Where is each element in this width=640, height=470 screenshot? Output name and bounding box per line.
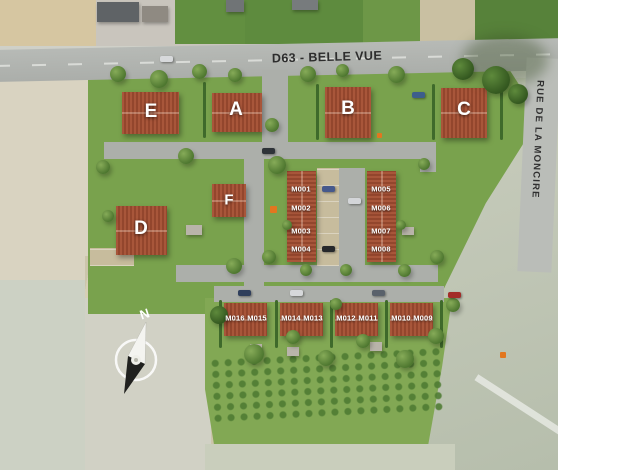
car xyxy=(322,246,335,252)
unit-label: M011 xyxy=(358,314,377,323)
tree-icon xyxy=(110,66,126,82)
tree-icon xyxy=(508,84,528,104)
site-plan-canvas: D63 - BELLE VUE RUE DE LA MONCIRE E A B … xyxy=(0,0,640,470)
unit-label: M008 xyxy=(371,245,391,254)
tree-icon xyxy=(396,220,406,230)
unit-label: M012 xyxy=(336,314,356,323)
neighbor-roof xyxy=(226,0,244,12)
tree-icon xyxy=(178,148,194,164)
garden-shed xyxy=(186,225,202,235)
car xyxy=(290,290,303,296)
unit-label: M010 xyxy=(391,314,411,323)
tree-icon xyxy=(268,156,286,174)
unit-label: M005 xyxy=(371,185,391,194)
tree-icon xyxy=(300,66,316,82)
playground-item xyxy=(500,352,506,358)
south-meadow-edge xyxy=(205,444,455,470)
building-label-c: C xyxy=(457,99,471,121)
unit-label: M013 xyxy=(303,314,323,323)
yard-sand xyxy=(420,0,475,44)
garden-shed xyxy=(370,342,382,351)
hedge xyxy=(432,84,435,140)
tree-icon xyxy=(430,250,444,264)
compass-icon: N xyxy=(100,298,170,408)
unit-label: M001 xyxy=(291,185,311,194)
tree-icon xyxy=(228,68,242,82)
building-label-e: E xyxy=(145,101,158,123)
tree-icon xyxy=(398,264,411,277)
building-label-f: F xyxy=(224,192,233,209)
unit-label: M007 xyxy=(371,227,391,236)
unit-label: M003 xyxy=(291,227,311,236)
unit-label: M014 xyxy=(281,314,301,323)
tree-icon xyxy=(102,210,114,222)
tree-icon xyxy=(446,298,460,312)
hedge xyxy=(385,300,388,348)
tree-icon xyxy=(388,66,405,83)
playground-item xyxy=(377,133,382,138)
hedge xyxy=(316,84,319,140)
main-road-label: D63 - BELLE VUE xyxy=(272,49,383,66)
car xyxy=(348,198,361,204)
neighbor-roof xyxy=(97,2,139,22)
tree-icon xyxy=(452,58,474,80)
tree-icon xyxy=(265,118,279,132)
neighbor-roof xyxy=(142,6,168,22)
hedge xyxy=(500,86,503,140)
tree-icon xyxy=(192,64,207,79)
tree-icon xyxy=(286,330,300,344)
car xyxy=(448,292,461,298)
neighbor-roof xyxy=(292,0,318,10)
internal-road-vertical xyxy=(244,156,264,282)
left-field xyxy=(0,76,92,286)
unit-label: M002 xyxy=(291,204,311,213)
left-field-lower xyxy=(0,280,92,470)
unit-label: M015 xyxy=(247,314,267,323)
hedge xyxy=(203,82,206,138)
tree-icon xyxy=(318,350,334,366)
tree-icon xyxy=(396,350,414,368)
hedge xyxy=(275,300,278,348)
car xyxy=(238,290,251,296)
tree-icon xyxy=(244,344,264,364)
yard-green xyxy=(363,0,420,44)
building-label-b: B xyxy=(341,98,355,120)
tree-icon xyxy=(150,70,168,88)
compass-north-label: N xyxy=(138,305,152,322)
sand-field-top-left xyxy=(0,0,96,46)
tree-icon xyxy=(356,334,370,348)
tree-icon xyxy=(330,298,342,310)
car xyxy=(160,56,173,62)
garden-shed xyxy=(287,347,299,356)
car xyxy=(322,186,335,192)
car xyxy=(262,148,275,154)
tree-icon xyxy=(340,264,352,276)
tree-icon xyxy=(336,64,349,77)
building-label-a: A xyxy=(229,99,243,121)
tree-icon xyxy=(300,264,312,276)
parking-lane xyxy=(339,168,365,266)
unit-label: M004 xyxy=(291,245,311,254)
tree-icon xyxy=(418,158,430,170)
tree-icon xyxy=(262,250,276,264)
unit-label: M016 xyxy=(225,314,245,323)
tree-icon xyxy=(428,328,444,344)
tree-icon xyxy=(96,160,110,174)
unit-label: M009 xyxy=(413,314,433,323)
page-margin xyxy=(558,0,640,470)
car xyxy=(412,92,425,98)
building-label-d: D xyxy=(134,218,148,240)
car xyxy=(372,290,385,296)
playground-item xyxy=(270,206,277,213)
tree-icon xyxy=(482,66,510,94)
unit-label: M006 xyxy=(371,204,391,213)
tree-icon xyxy=(226,258,242,274)
